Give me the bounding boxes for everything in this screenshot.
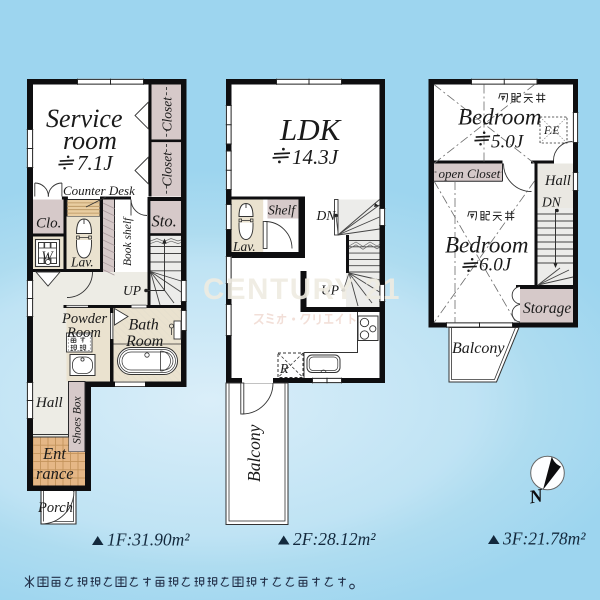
svg-text:Room: Room [125,333,163,350]
svg-text:Closet: Closet [160,151,175,187]
svg-text:Bedroom: Bedroom [458,105,541,130]
svg-text:rance: rance [36,464,74,483]
svg-text:1F:31.90m²: 1F:31.90m² [107,530,190,550]
svg-text:Storage: Storage [523,300,571,317]
svg-text:14.3J: 14.3J [292,145,340,169]
svg-text:5.0J: 5.0J [491,132,525,153]
svg-text:6.0J: 6.0J [479,255,513,276]
svg-text:open Closet: open Closet [439,166,501,181]
svg-text:Shelf: Shelf [268,203,297,218]
svg-text:Hall: Hall [544,173,571,189]
svg-text:2F:28.12m²: 2F:28.12m² [293,529,376,549]
svg-text:Clo.: Clo. [36,216,61,232]
svg-text:CENTURY 21: CENTURY 21 [203,273,401,306]
svg-text:DN: DN [541,195,562,210]
svg-text:Balcony: Balcony [244,424,264,482]
svg-text:Room: Room [66,325,101,341]
svg-text:Bath: Bath [129,317,159,334]
svg-text:Shoes Box: Shoes Box [72,396,84,444]
svg-text:DN: DN [316,208,337,223]
svg-text:Lav.: Lav. [70,255,94,270]
svg-text:Lav.: Lav. [232,239,256,254]
svg-text:Hall: Hall [35,395,63,411]
svg-text:F.E: F.E [543,125,559,137]
svg-text:Book shelf: Book shelf [122,216,134,266]
svg-text:Closet: Closet [160,96,175,132]
svg-text:Ent: Ent [42,444,66,463]
svg-text:7.1J: 7.1J [77,151,114,175]
svg-text:LDK: LDK [279,112,343,147]
svg-text:UP: UP [123,283,141,298]
svg-text:Sto.: Sto. [152,212,177,231]
svg-text:Porch: Porch [37,500,73,516]
svg-text:R: R [279,361,289,376]
svg-text:Balcony: Balcony [452,340,505,357]
svg-text:Counter Desk: Counter Desk [63,183,135,198]
svg-text:3F:21.78m²: 3F:21.78m² [502,529,586,549]
